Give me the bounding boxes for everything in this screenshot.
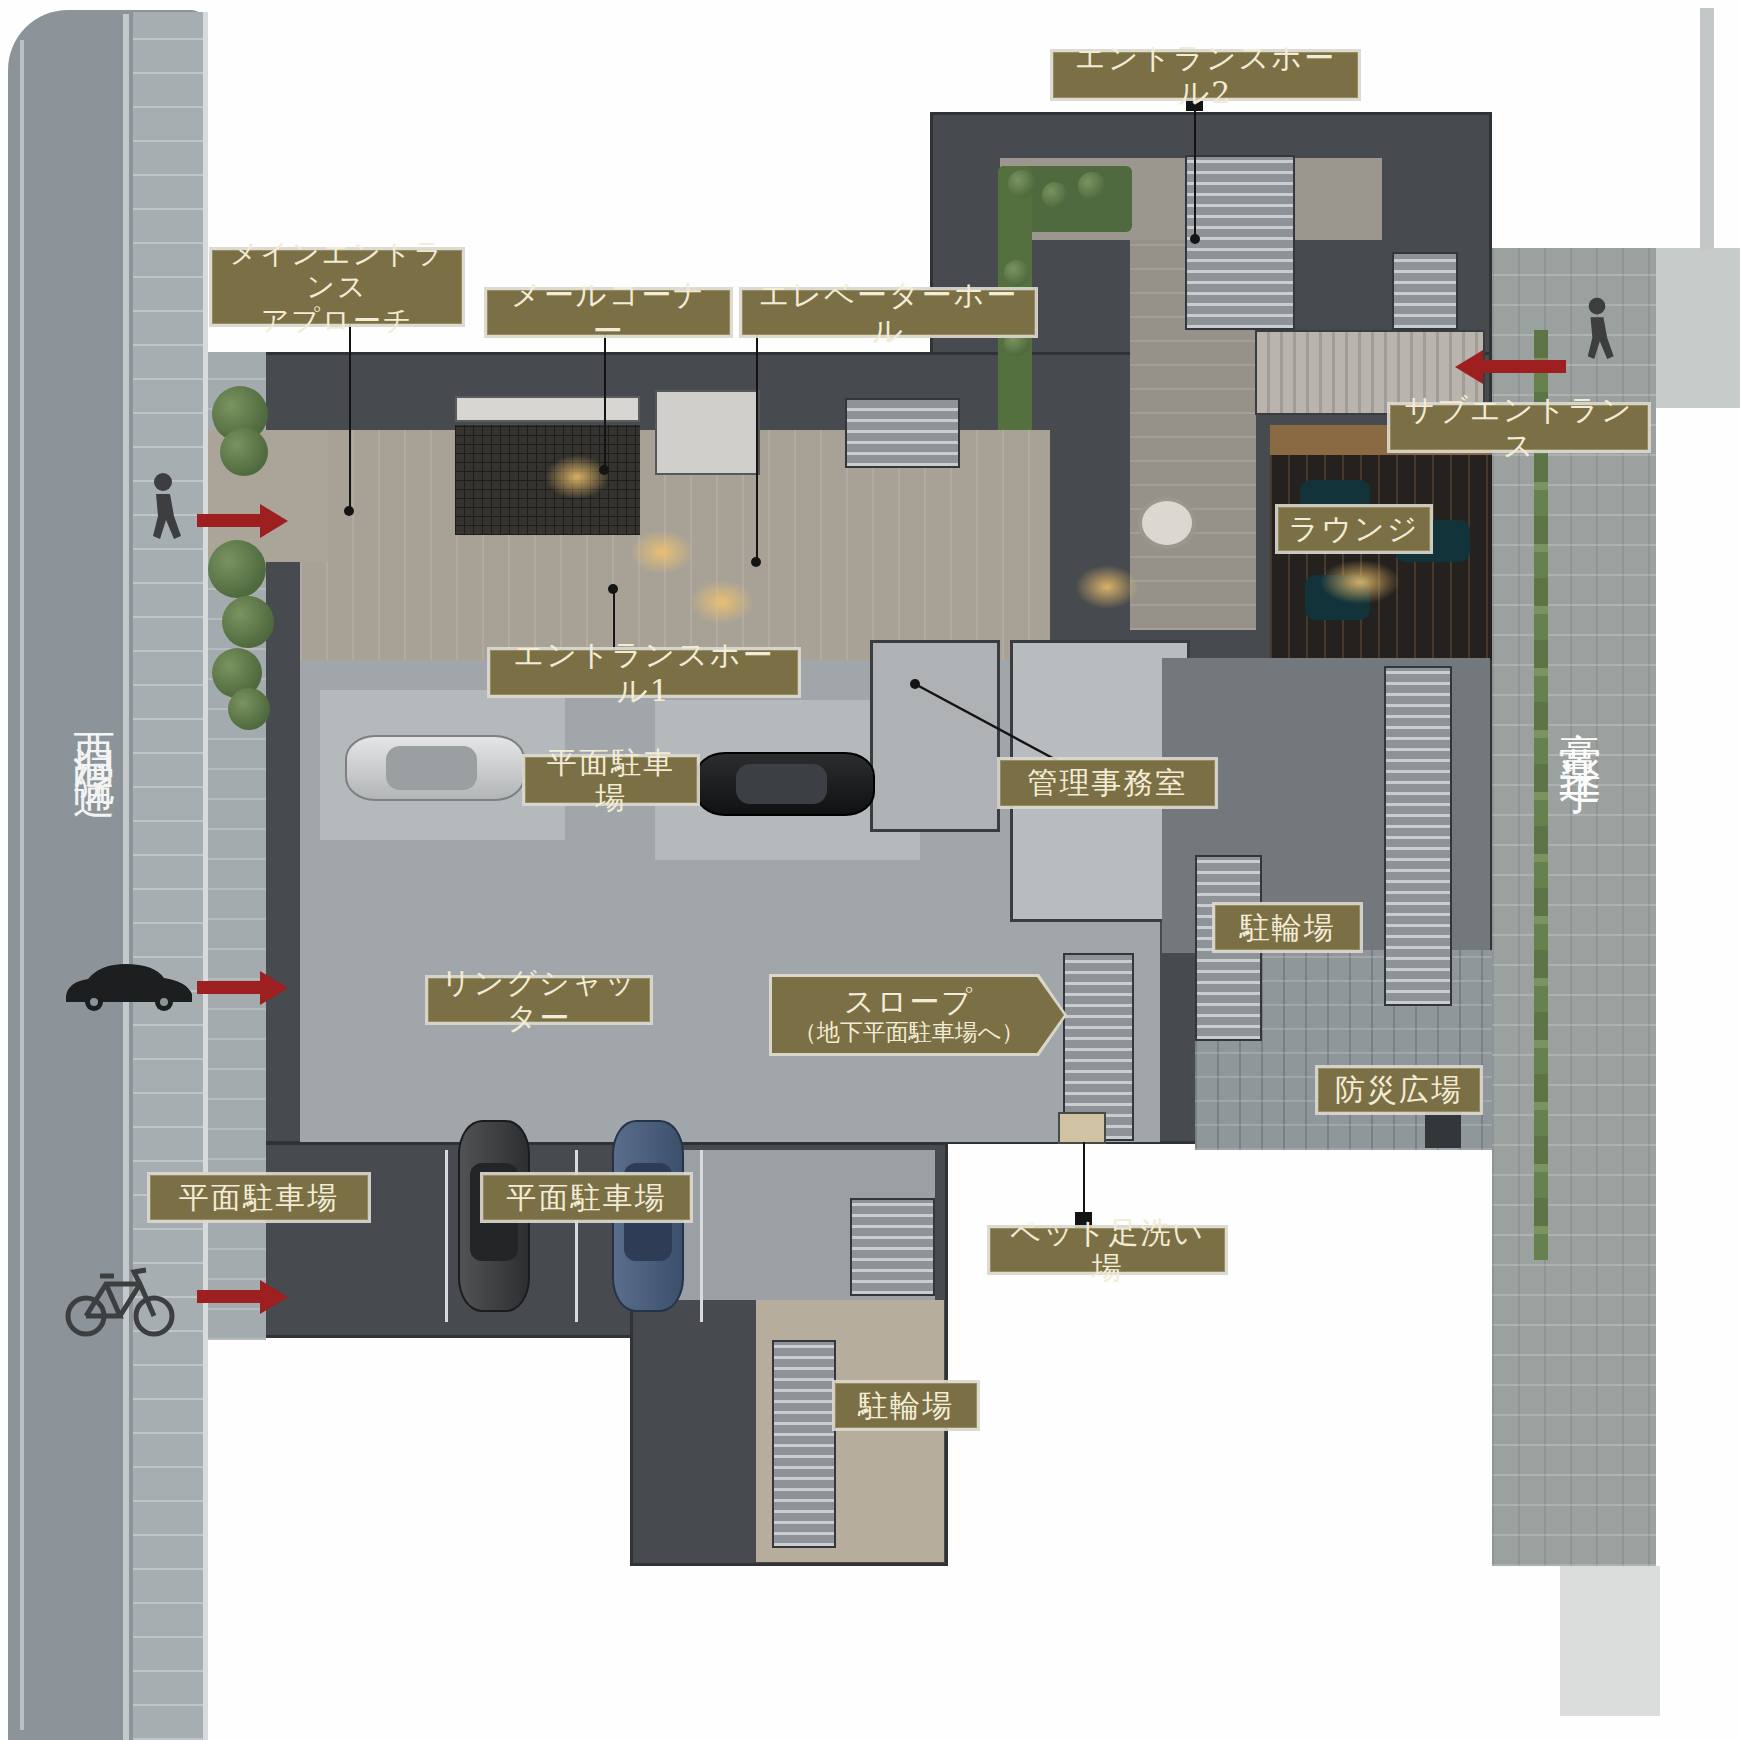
street-name-west: 西洞院通 (52, 700, 122, 960)
east-alley-bottom-paving (1560, 1566, 1660, 1716)
stall-line (700, 1150, 703, 1322)
label-mail-corner: メールコーナー (487, 290, 730, 335)
label-entrance-hall-2: エントランスホール2 (1053, 52, 1358, 98)
pet-foot-wash-station (1058, 1112, 1106, 1144)
label-text: ラウンジ (1289, 511, 1420, 546)
label-text: メインエントランス (221, 237, 453, 303)
label-management-office: 管理事務室 (1000, 760, 1215, 806)
label-text: 平面駐車場 (179, 1180, 339, 1215)
leader-pet-foot-wash (1083, 1142, 1085, 1216)
label-bicycle-parking-right: 駐輪場 (1215, 905, 1360, 950)
stairs-hall (845, 398, 960, 468)
leader-entrance-hall-2 (1194, 110, 1196, 238)
bush (222, 596, 274, 648)
stall-line (445, 1150, 448, 1322)
label-ring-shutter: リングシャッター (428, 978, 650, 1022)
label-flat-parking-left: 平面駐車場 (150, 1175, 368, 1220)
label-pet-foot-wash: ペット足洗い場 (990, 1228, 1225, 1272)
entry-arrow-car (197, 971, 291, 1005)
label-text: 平面駐車場 (534, 745, 688, 816)
label-disaster-plaza: 防災広場 (1318, 1068, 1480, 1112)
car-roof (736, 764, 828, 805)
label-text: エレベーターホール (751, 277, 1026, 348)
leader-mail-corner (604, 333, 606, 469)
label-slope-body: スロープ （地下平面駐車場へ） (772, 977, 1064, 1053)
bush (228, 688, 270, 730)
label-bicycle-parking-bottom: 駐輪場 (835, 1383, 977, 1428)
label-text: （地下平面駐車場へ） (794, 1019, 1025, 1045)
leader-dot-elevator-hall (751, 557, 761, 567)
oval-planter (1138, 497, 1196, 549)
light-glow (545, 455, 609, 499)
label-elevator-hall: エレベーターホール (742, 290, 1035, 335)
leader-main-entrance-approach (349, 322, 351, 510)
parked-car-silver (345, 735, 525, 801)
bicycle-rack-bottom (772, 1340, 836, 1548)
bicycle-icon (62, 1260, 178, 1340)
west-street-lane-line (123, 14, 129, 1740)
stairs-north-1 (1185, 155, 1295, 330)
bush (220, 428, 268, 476)
light-glow (690, 580, 754, 624)
label-sub-entrance: サブエントランス (1390, 405, 1648, 450)
label-text: 駐輪場 (858, 1388, 954, 1423)
label-text: エントランスホール1 (499, 637, 789, 708)
label-text: エントランスホール2 (1062, 40, 1349, 111)
label-text: 防災広場 (1335, 1072, 1463, 1107)
site-plan: エントランスホール2 メインエントランス アプローチ メールコーナー エレベータ… (0, 0, 1740, 1740)
stairs-north-2 (1392, 252, 1458, 330)
mail-corner-counter (455, 396, 640, 422)
leader-dot-mail-corner (599, 465, 609, 475)
planter-shrub (1008, 170, 1036, 198)
car-icon (58, 956, 200, 1012)
light-glow (1320, 560, 1400, 604)
plaza-equipment (1425, 1112, 1461, 1148)
label-text: リングシャッター (437, 965, 641, 1036)
entry-arrow-pedestrian (197, 504, 291, 538)
leader-dot-entrance-hall-2 (1190, 234, 1200, 244)
north-street-edge-strip (1700, 8, 1714, 250)
leader-dot-main-entrance-approach (344, 506, 354, 516)
label-main-entrance-approach: メインエントランス アプローチ (212, 250, 462, 324)
planter-shrub (1078, 172, 1106, 200)
elevator-hall-room (655, 390, 760, 475)
leader-dot-entrance-hall-1 (608, 584, 618, 594)
label-slope: スロープ （地下平面駐車場へ） (769, 974, 1067, 1056)
entry-arrow-bicycle (197, 1280, 291, 1314)
planter-shrub (1042, 182, 1068, 208)
label-text: 駐輪場 (1240, 910, 1336, 945)
west-street-curb-line (20, 40, 24, 1730)
label-entrance-hall-1: エントランスホール1 (490, 650, 798, 695)
light-glow (630, 530, 694, 574)
entry-arrow-sub-entrance (1455, 350, 1567, 384)
label-text: ペット足洗い場 (999, 1215, 1216, 1286)
label-flat-parking-bottom: 平面駐車場 (483, 1175, 690, 1220)
west-street-sidewalk (133, 12, 205, 1740)
car-roof (386, 746, 478, 789)
bush (208, 540, 266, 598)
street-name-east: 膏薬辻子 (1538, 700, 1608, 960)
pedestrian-icon (1572, 296, 1622, 370)
leader-management-office (900, 670, 1080, 770)
parked-car-black (695, 752, 875, 816)
east-alley-side-paving (1656, 248, 1740, 408)
label-text: サブエントランス (1399, 392, 1639, 463)
stairs-east-long (1384, 666, 1452, 1006)
label-text: アプローチ (261, 304, 414, 337)
label-text: メールコーナー (496, 277, 721, 348)
label-text: 管理事務室 (1028, 765, 1188, 800)
label-text: スロープ (844, 985, 974, 1020)
bicycle-rack-mid (850, 1198, 935, 1296)
label-lounge: ラウンジ (1278, 507, 1430, 551)
pedestrian-icon (136, 472, 190, 550)
label-text: 平面駐車場 (507, 1180, 667, 1215)
leader-elevator-hall (756, 333, 758, 561)
light-glow (1075, 565, 1139, 609)
label-flat-parking-mid: 平面駐車場 (525, 757, 697, 803)
